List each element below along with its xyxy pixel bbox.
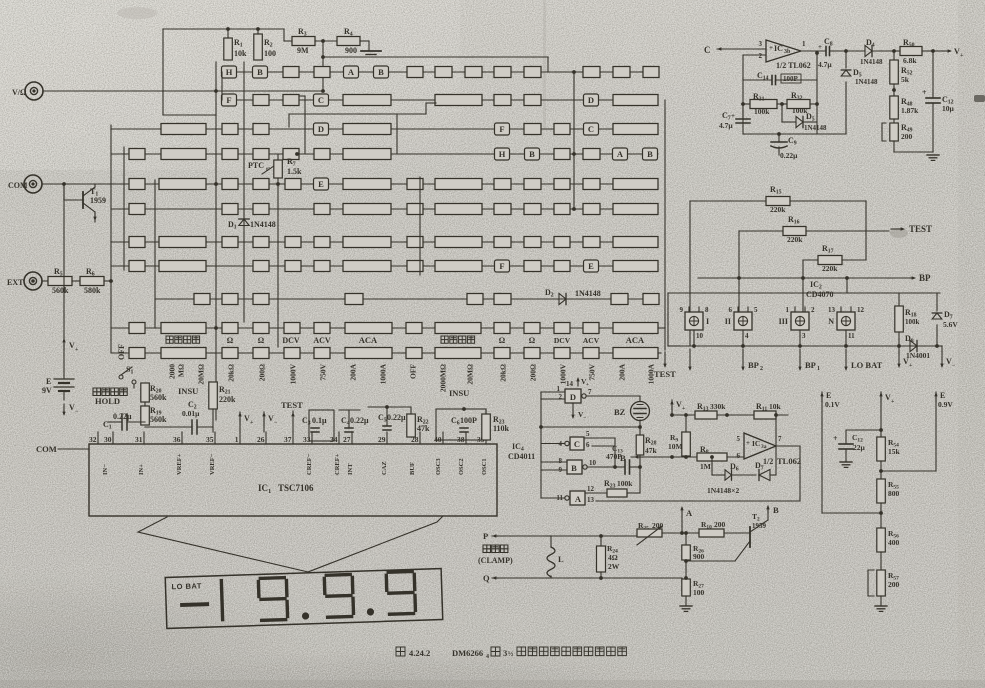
svg-text:220k: 220k — [770, 205, 786, 214]
svg-text:1N4148: 1N4148 — [860, 58, 883, 66]
svg-text:(CLAMP): (CLAMP) — [478, 556, 513, 565]
svg-text:BUF: BUF — [409, 462, 416, 475]
svg-text:36: 36 — [173, 435, 181, 444]
svg-text:IC: IC — [752, 439, 760, 448]
svg-text:4.24.2: 4.24.2 — [409, 648, 430, 658]
svg-text:20kΩ: 20kΩ — [499, 364, 508, 382]
svg-text:6.8k: 6.8k — [903, 56, 917, 65]
svg-text:1/2: 1/2 — [763, 457, 773, 466]
svg-text:−: − — [952, 363, 956, 369]
svg-text:−: − — [583, 415, 586, 421]
svg-text:Ω: Ω — [499, 336, 506, 345]
svg-text:II: II — [725, 317, 731, 326]
svg-text:ACV: ACV — [313, 336, 331, 345]
svg-text:C: C — [574, 439, 580, 449]
svg-text:BP: BP — [748, 360, 759, 370]
svg-text:10M: 10M — [668, 442, 683, 451]
svg-text:2W: 2W — [608, 562, 620, 571]
svg-text:4: 4 — [745, 332, 749, 340]
svg-text:1000A: 1000A — [379, 363, 388, 384]
svg-text:C: C — [704, 45, 711, 55]
svg-text:+: + — [731, 112, 735, 120]
svg-text:110k: 110k — [493, 424, 510, 433]
svg-text:560k: 560k — [52, 286, 69, 295]
svg-text:OSC2: OSC2 — [458, 458, 465, 475]
svg-text:E: E — [318, 179, 324, 189]
svg-text:E: E — [588, 261, 594, 271]
svg-text:4Ω: 4Ω — [608, 553, 618, 562]
svg-text:F: F — [226, 95, 231, 105]
svg-text:1: 1 — [786, 306, 790, 314]
svg-text:6: 6 — [729, 306, 733, 314]
svg-text:P: P — [483, 531, 488, 541]
svg-text:47k: 47k — [417, 424, 430, 433]
svg-text:20MΩ: 20MΩ — [197, 364, 206, 385]
svg-text:100: 100 — [693, 588, 705, 597]
svg-text:TEST: TEST — [654, 369, 676, 379]
svg-text:B: B — [647, 149, 653, 159]
svg-text:LO BAT: LO BAT — [851, 360, 883, 370]
svg-text:+: + — [960, 53, 964, 59]
svg-text:26: 26 — [257, 435, 265, 444]
svg-text:Ω: Ω — [258, 336, 265, 345]
svg-text:15k: 15k — [888, 447, 901, 456]
svg-text:OFF: OFF — [409, 364, 418, 379]
svg-text:20kΩ: 20kΩ — [227, 364, 236, 382]
svg-text:220k: 220k — [787, 235, 803, 244]
svg-text:CD4070: CD4070 — [806, 290, 834, 299]
svg-text:1: 1 — [817, 366, 820, 372]
svg-text:D: D — [588, 95, 594, 105]
svg-text:33: 33 — [303, 435, 311, 444]
svg-text:C: C — [588, 124, 594, 134]
svg-text:200: 200 — [714, 520, 726, 529]
svg-text:11: 11 — [848, 332, 855, 340]
svg-text:2: 2 — [759, 52, 763, 60]
svg-text:800: 800 — [888, 489, 900, 498]
svg-text:E: E — [940, 391, 945, 400]
svg-text:200: 200 — [901, 132, 913, 141]
svg-text:EXT: EXT — [7, 278, 24, 287]
svg-text:10k: 10k — [234, 49, 247, 58]
svg-text:3: 3 — [759, 40, 763, 48]
svg-text:1N4148: 1N4148 — [250, 220, 276, 229]
svg-text:2: 2 — [760, 366, 763, 372]
svg-text:0.1μ: 0.1μ — [312, 416, 327, 425]
svg-text:TL062: TL062 — [777, 456, 801, 466]
svg-text:BZ: BZ — [614, 407, 626, 417]
svg-text:100k: 100k — [617, 479, 633, 488]
svg-text:+: + — [769, 44, 773, 52]
svg-text:4: 4 — [486, 654, 489, 660]
svg-text:IN+: IN+ — [138, 464, 145, 475]
svg-text:8: 8 — [559, 457, 563, 465]
svg-text:½: ½ — [508, 650, 513, 658]
svg-text:0.22μ: 0.22μ — [350, 416, 369, 425]
svg-text:III: III — [779, 317, 788, 326]
svg-text:INSU: INSU — [178, 386, 198, 396]
svg-text:1959: 1959 — [90, 196, 106, 205]
svg-text:N: N — [828, 317, 834, 326]
svg-text:+: + — [250, 420, 254, 426]
svg-text:31: 31 — [135, 435, 143, 444]
svg-text:1N4148×2: 1N4148×2 — [707, 486, 739, 495]
svg-text:F: F — [499, 261, 504, 271]
svg-text:LO BAT: LO BAT — [171, 581, 202, 591]
svg-text:32: 32 — [89, 435, 97, 444]
svg-text:27: 27 — [343, 435, 351, 444]
svg-text:D: D — [570, 392, 576, 402]
svg-text:−: − — [274, 420, 278, 426]
svg-text:VREF+: VREF+ — [176, 453, 183, 475]
svg-text:OSC3: OSC3 — [435, 458, 442, 475]
svg-text:12: 12 — [857, 306, 865, 314]
svg-text:1M: 1M — [700, 462, 711, 471]
svg-text:H: H — [226, 67, 233, 77]
svg-text:B: B — [571, 463, 577, 473]
svg-text:1: 1 — [802, 40, 806, 48]
svg-text:29: 29 — [378, 435, 386, 444]
svg-text:1: 1 — [268, 488, 271, 495]
svg-text:I: I — [706, 317, 709, 326]
svg-text:2000: 2000 — [168, 364, 177, 379]
svg-text:OFF: OFF — [117, 344, 126, 360]
svg-text:L: L — [558, 554, 564, 564]
svg-text:Ω: Ω — [227, 336, 234, 345]
svg-text:6: 6 — [586, 441, 590, 449]
svg-text:F: F — [499, 124, 504, 134]
svg-text:E: E — [826, 391, 831, 400]
svg-text:Q: Q — [483, 573, 490, 583]
svg-text:5: 5 — [586, 430, 590, 438]
svg-text:12: 12 — [587, 485, 595, 493]
svg-text:B: B — [529, 149, 535, 159]
svg-text:3: 3 — [802, 332, 806, 340]
svg-text:H: H — [499, 149, 506, 159]
svg-text:220k: 220k — [219, 395, 236, 404]
svg-text:100P: 100P — [460, 416, 477, 425]
svg-text:100P: 100P — [783, 75, 799, 83]
svg-text:9M: 9M — [297, 46, 309, 55]
svg-text:7: 7 — [778, 435, 782, 443]
svg-text:COM: COM — [8, 181, 28, 190]
svg-text:TEST: TEST — [909, 224, 932, 234]
svg-text:0.1V: 0.1V — [825, 400, 840, 409]
svg-text:E: E — [46, 377, 51, 386]
svg-text:8: 8 — [705, 306, 709, 314]
svg-text:0.9V: 0.9V — [938, 400, 953, 409]
svg-text:7: 7 — [588, 388, 592, 396]
svg-text:IC: IC — [774, 44, 783, 53]
svg-text:+: + — [833, 434, 838, 443]
svg-text:ACA: ACA — [626, 335, 645, 345]
svg-text:+: + — [818, 43, 822, 51]
svg-text:3a: 3a — [761, 444, 767, 450]
svg-text:10k: 10k — [769, 402, 782, 411]
svg-text:100k: 100k — [754, 107, 770, 116]
svg-text:OSC1: OSC1 — [481, 458, 488, 475]
svg-text:10μ: 10μ — [942, 104, 955, 113]
svg-text:+: + — [922, 88, 927, 97]
svg-text:BP: BP — [919, 273, 931, 283]
svg-text:INT: INT — [347, 463, 354, 475]
svg-text:B: B — [257, 67, 263, 77]
svg-text:1N4001: 1N4001 — [906, 351, 930, 360]
svg-text:560k: 560k — [150, 415, 167, 424]
svg-text:3b: 3b — [784, 49, 791, 55]
svg-text:200Ω: 200Ω — [529, 364, 538, 381]
svg-text:1.5k: 1.5k — [287, 167, 302, 176]
svg-text:+: + — [682, 406, 686, 412]
svg-text:5k: 5k — [901, 75, 910, 84]
svg-text:1N4148: 1N4148 — [804, 124, 827, 132]
svg-text:2: 2 — [811, 306, 815, 314]
svg-text:A: A — [686, 508, 693, 518]
svg-text:INSU: INSU — [449, 388, 469, 398]
svg-text:1.87k: 1.87k — [901, 106, 919, 115]
svg-text:CAZ: CAZ — [381, 461, 388, 475]
svg-text:+: + — [75, 347, 79, 353]
svg-text:B: B — [773, 505, 779, 515]
svg-text:750V: 750V — [319, 363, 328, 380]
svg-text:5: 5 — [737, 435, 741, 443]
svg-text:−: − — [75, 409, 79, 415]
svg-text:13: 13 — [828, 306, 836, 314]
svg-text:6: 6 — [737, 452, 741, 460]
svg-text:10: 10 — [589, 459, 597, 467]
svg-text:ACV: ACV — [583, 336, 600, 345]
svg-text:35: 35 — [206, 435, 214, 444]
svg-text:ACA: ACA — [359, 335, 378, 345]
svg-text:900: 900 — [693, 552, 705, 561]
svg-text:0.22μ: 0.22μ — [387, 413, 406, 422]
svg-text:CREF+: CREF+ — [334, 453, 341, 475]
svg-text:580k: 580k — [84, 286, 101, 295]
svg-text:200: 200 — [888, 580, 900, 589]
svg-text:14: 14 — [566, 380, 574, 388]
svg-text:200Ω: 200Ω — [258, 364, 267, 381]
svg-text:VREF−: VREF− — [209, 453, 216, 475]
svg-text:+: + — [909, 363, 913, 369]
svg-text:TSC7106: TSC7106 — [278, 483, 314, 493]
svg-text:B: B — [378, 67, 384, 77]
svg-text:BP: BP — [805, 360, 816, 370]
svg-text:CD4011: CD4011 — [508, 452, 535, 461]
svg-text:4.7μ: 4.7μ — [818, 60, 832, 69]
svg-text:9: 9 — [680, 306, 684, 314]
svg-text:750V: 750V — [588, 363, 597, 380]
svg-text:MΩ: MΩ — [177, 364, 186, 377]
svg-text:30: 30 — [104, 435, 112, 444]
svg-text:HOLD: HOLD — [95, 396, 120, 406]
svg-text:0.01μ: 0.01μ — [182, 409, 200, 418]
svg-text:+: + — [746, 439, 750, 447]
svg-text:IC: IC — [258, 483, 268, 493]
svg-text:220k: 220k — [822, 264, 838, 273]
svg-text:B: B — [620, 453, 626, 463]
svg-text:1000V: 1000V — [289, 363, 298, 384]
svg-text:9V: 9V — [42, 386, 52, 395]
svg-text:10: 10 — [696, 332, 704, 340]
svg-text:100: 100 — [264, 49, 276, 58]
svg-text:2000MΩ: 2000MΩ — [439, 364, 448, 392]
svg-text:CREF−: CREF− — [306, 453, 313, 475]
svg-text:1N4148: 1N4148 — [575, 289, 601, 298]
svg-text:560k: 560k — [150, 393, 167, 402]
svg-text:37: 37 — [284, 435, 292, 444]
svg-text:1/2 TL062: 1/2 TL062 — [776, 61, 811, 70]
svg-text:20MΩ: 20MΩ — [466, 364, 475, 385]
svg-text:400: 400 — [888, 538, 900, 547]
svg-text:A: A — [348, 67, 355, 77]
svg-text:330k: 330k — [710, 402, 726, 411]
svg-text:900: 900 — [345, 46, 357, 55]
svg-text:COM: COM — [36, 444, 57, 454]
svg-text:200A: 200A — [349, 363, 358, 380]
svg-text:DM6266: DM6266 — [452, 648, 483, 658]
svg-text:1959: 1959 — [752, 522, 767, 530]
svg-text:200A: 200A — [618, 363, 627, 380]
svg-text:C: C — [318, 95, 324, 105]
svg-text:+: + — [891, 399, 895, 405]
svg-text:100k: 100k — [905, 318, 920, 326]
svg-text:D: D — [318, 124, 324, 134]
svg-text:4.7μ: 4.7μ — [719, 121, 733, 130]
svg-text:V/Ω: V/Ω — [12, 88, 27, 97]
svg-text:TEST: TEST — [281, 400, 303, 410]
svg-text:1N4148: 1N4148 — [855, 78, 878, 86]
svg-text:DCV: DCV — [282, 336, 300, 345]
svg-text:13: 13 — [587, 496, 595, 504]
svg-text:5.6V: 5.6V — [943, 320, 958, 329]
svg-text:47k: 47k — [645, 446, 658, 455]
svg-text:Ω: Ω — [529, 336, 536, 345]
svg-text:5: 5 — [754, 306, 758, 314]
svg-text:DCV: DCV — [554, 336, 571, 345]
svg-text:1: 1 — [235, 435, 239, 444]
svg-text:22μ: 22μ — [853, 443, 866, 452]
svg-text:IN−: IN− — [102, 464, 109, 475]
svg-text:PTC: PTC — [248, 161, 264, 170]
svg-text:3: 3 — [503, 648, 507, 658]
svg-text:0.22μ: 0.22μ — [780, 151, 798, 160]
svg-text:A: A — [617, 149, 624, 159]
svg-text:2: 2 — [559, 393, 563, 401]
svg-text:A: A — [575, 494, 582, 504]
